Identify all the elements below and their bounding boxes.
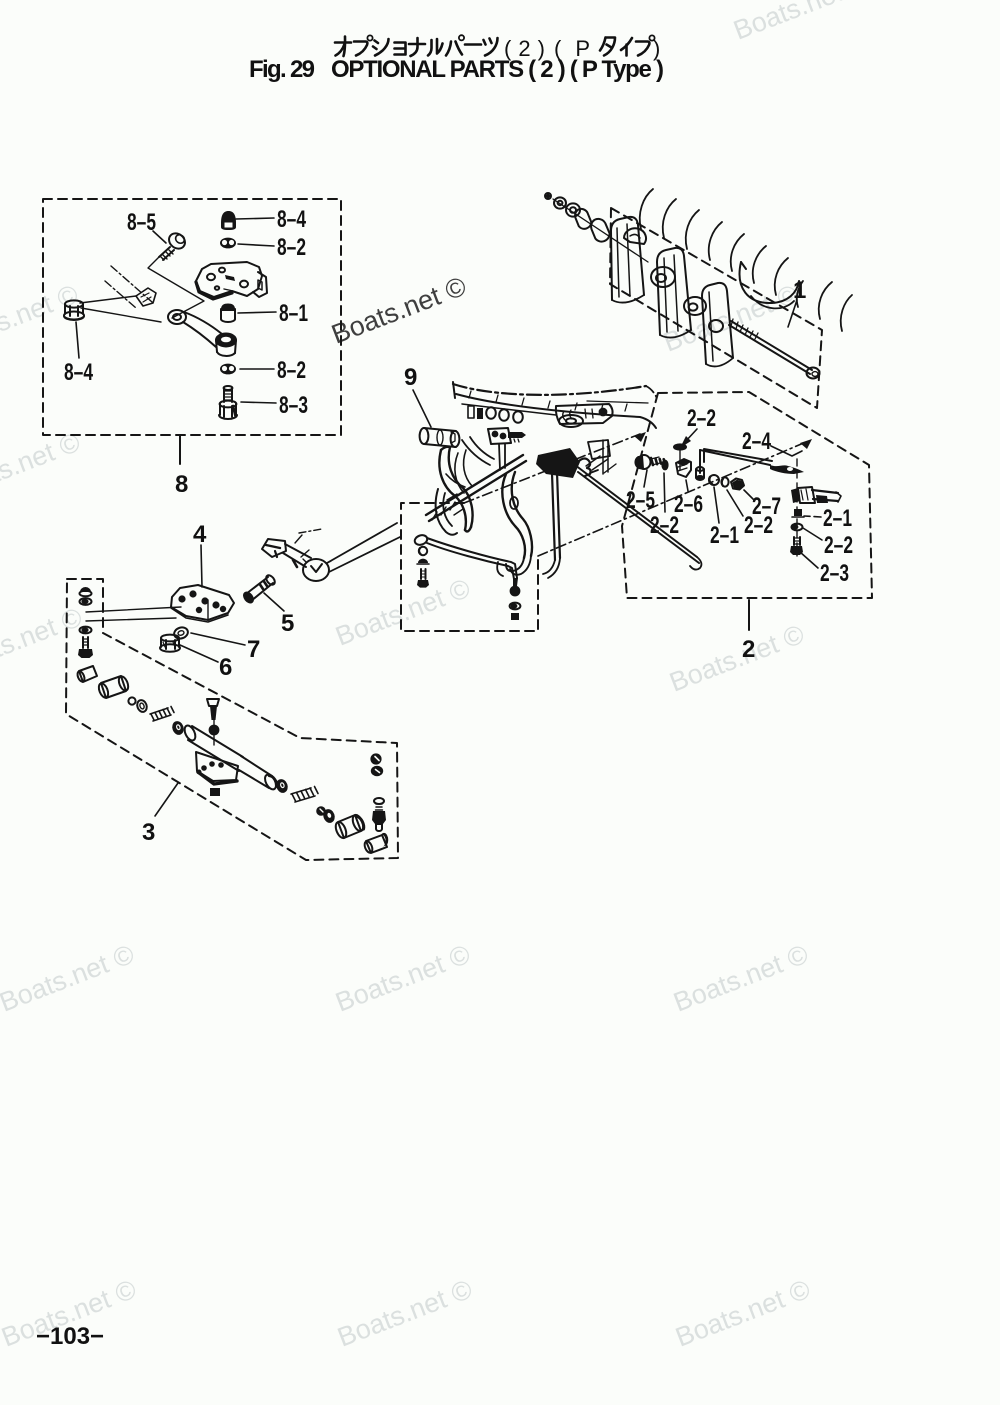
svg-text:2–2: 2–2 [687, 405, 716, 432]
svg-text:2–5: 2–5 [626, 487, 655, 514]
svg-text:8: 8 [175, 471, 188, 498]
svg-text:9: 9 [404, 364, 417, 391]
svg-text:8–4: 8–4 [277, 206, 306, 233]
svg-text:OPTIONAL PARTS ( 2 ) ( P Type: OPTIONAL PARTS ( 2 ) ( P Type ) [331, 56, 664, 83]
svg-text:8–3: 8–3 [279, 392, 308, 419]
svg-text:Fig. 29: Fig. 29 [249, 56, 315, 83]
svg-text:2: 2 [742, 636, 755, 663]
svg-text:7: 7 [247, 636, 260, 663]
svg-text:−103−: −103− [36, 1323, 104, 1350]
svg-text:2–1: 2–1 [823, 505, 852, 532]
svg-text:3: 3 [142, 819, 155, 846]
svg-text:2–3: 2–3 [820, 560, 849, 587]
svg-text:8–2: 8–2 [277, 234, 306, 261]
svg-text:6: 6 [219, 654, 232, 681]
svg-text:2–1: 2–1 [710, 522, 739, 549]
svg-text:2–2: 2–2 [824, 532, 853, 559]
svg-text:8–2: 8–2 [277, 357, 306, 384]
svg-text:5: 5 [281, 610, 294, 637]
svg-text:2–7: 2–7 [752, 493, 781, 520]
svg-text:2–4: 2–4 [742, 428, 771, 455]
svg-text:8–5: 8–5 [127, 209, 156, 236]
svg-text:2–6: 2–6 [674, 491, 703, 518]
svg-text:4: 4 [193, 521, 207, 548]
svg-text:8–1: 8–1 [279, 300, 308, 327]
svg-text:8–4: 8–4 [64, 359, 93, 386]
